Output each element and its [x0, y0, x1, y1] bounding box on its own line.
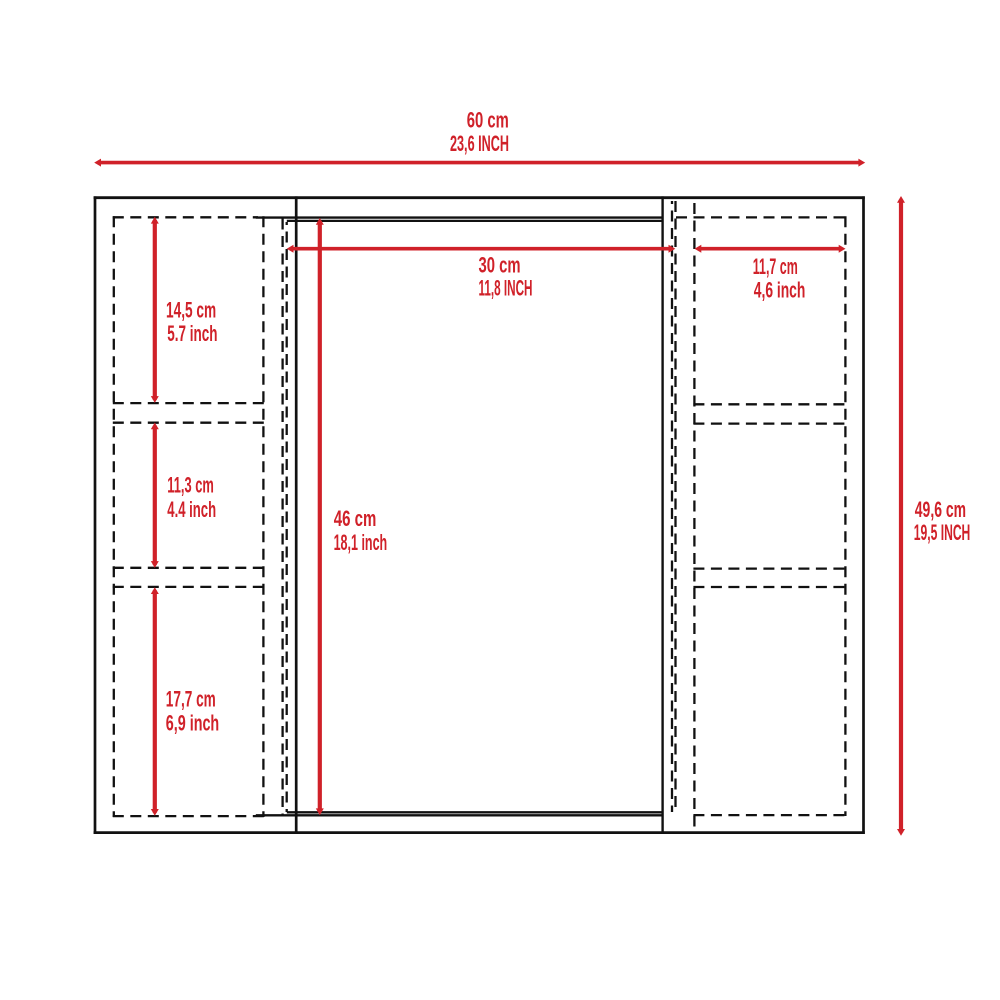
svg-text:11,8 INCH: 11,8 INCH: [479, 275, 533, 300]
svg-text:11,3 cm: 11,3 cm: [167, 472, 214, 497]
svg-text:14,5 cm: 14,5 cm: [166, 297, 216, 322]
svg-text:18,1 inch: 18,1 inch: [334, 530, 388, 555]
svg-text:60 cm: 60 cm: [467, 108, 509, 133]
svg-text:4,6 inch: 4,6 inch: [754, 277, 806, 302]
svg-text:4.4 inch: 4.4 inch: [167, 497, 216, 522]
svg-text:6,9 inch: 6,9 inch: [166, 710, 219, 735]
svg-text:46 cm: 46 cm: [334, 506, 377, 531]
svg-text:11,7 cm: 11,7 cm: [753, 254, 798, 279]
svg-text:19,5 INCH: 19,5 INCH: [914, 520, 971, 545]
svg-text:49,6 cm: 49,6 cm: [915, 497, 966, 522]
svg-text:23,6 INCH: 23,6 INCH: [450, 131, 509, 156]
svg-text:30 cm: 30 cm: [479, 253, 521, 278]
svg-text:17,7 cm: 17,7 cm: [166, 686, 216, 711]
svg-text:5.7 inch: 5.7 inch: [167, 321, 217, 346]
